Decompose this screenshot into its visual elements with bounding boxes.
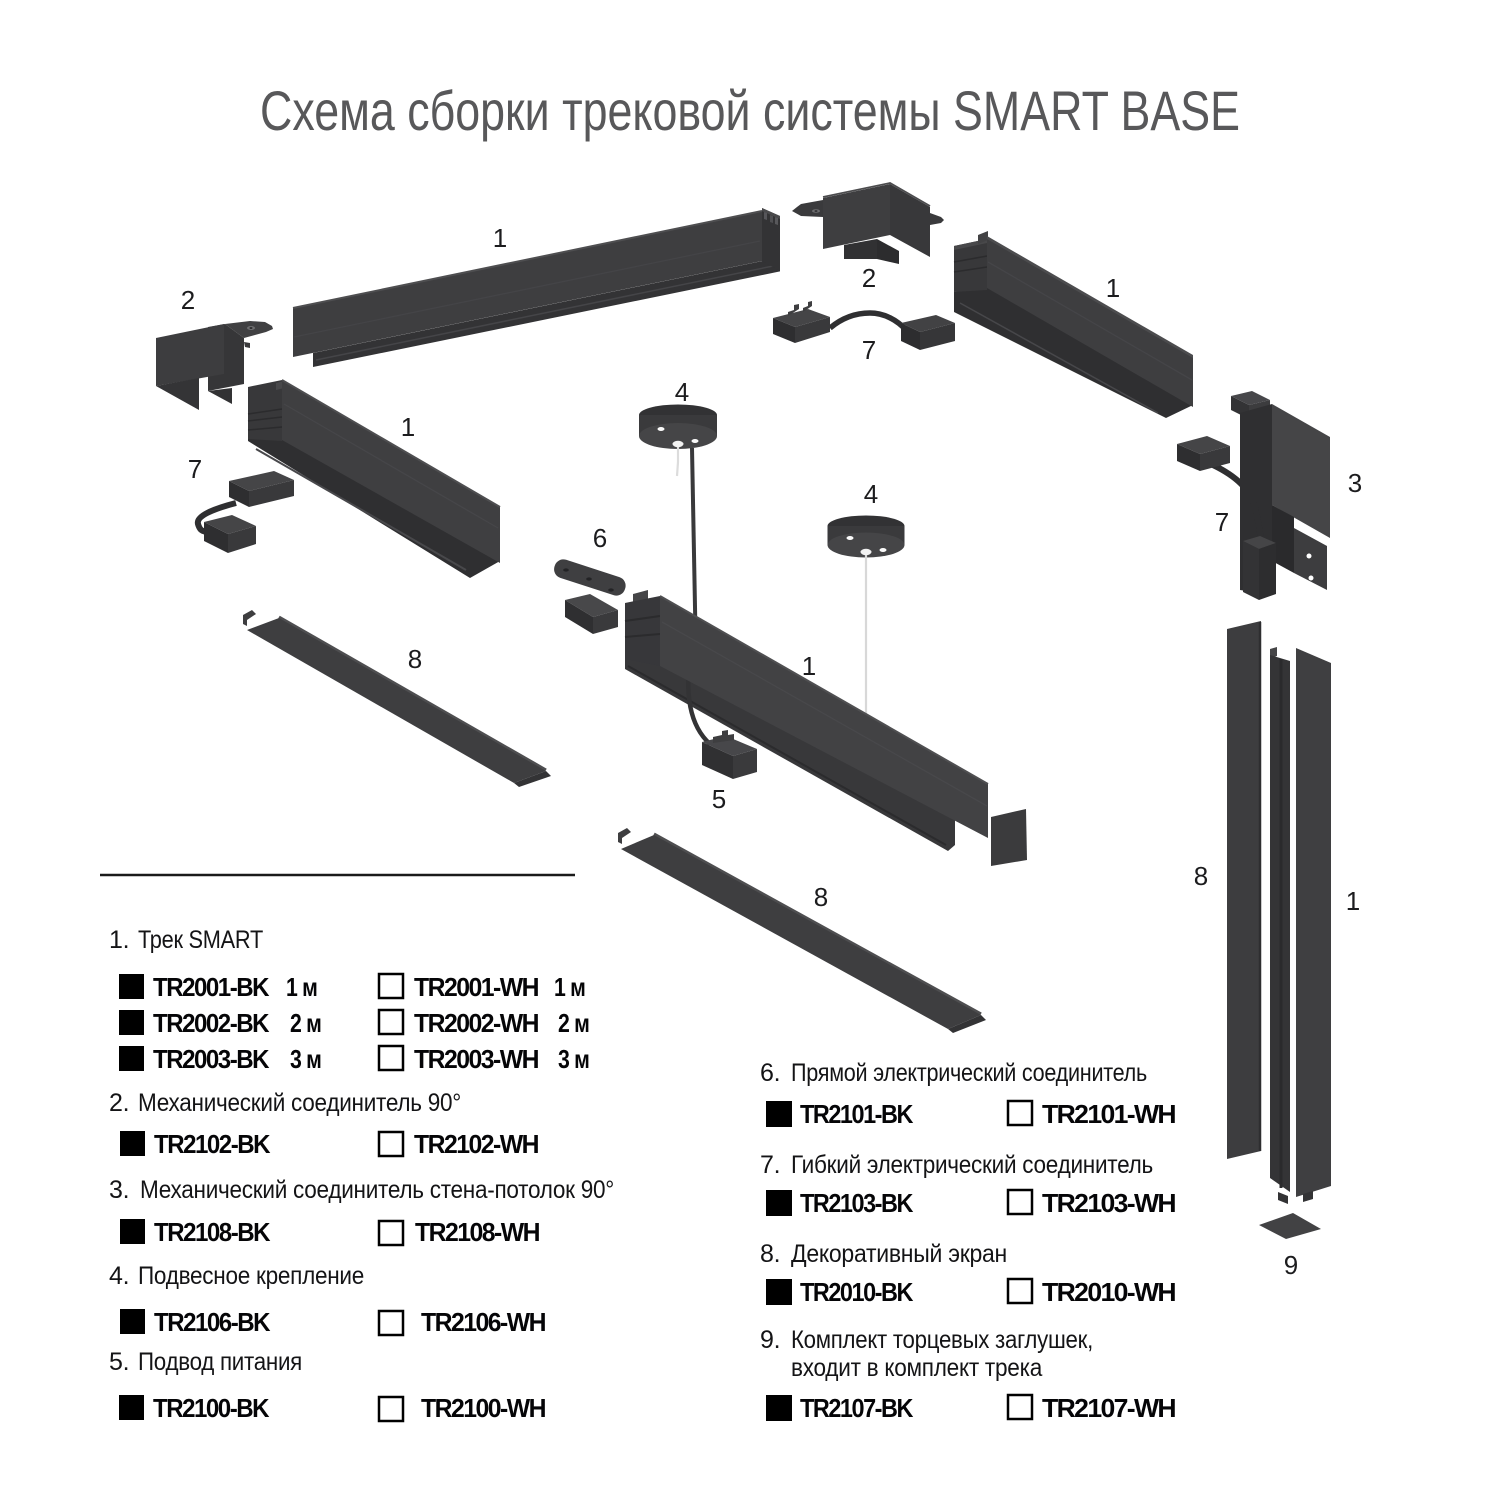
svg-text:4: 4 [675, 377, 689, 407]
svg-text:3: 3 [1348, 468, 1362, 498]
svg-text:1: 1 [1106, 273, 1120, 303]
svg-text:TR2002-WH: TR2002-WH [414, 1008, 539, 1038]
svg-text:TR2103-WH: TR2103-WH [1042, 1188, 1176, 1218]
svg-text:TR2106-WH: TR2106-WH [421, 1307, 546, 1337]
svg-text:TR2100-WH: TR2100-WH [421, 1393, 546, 1423]
svg-text:2: 2 [181, 285, 195, 315]
svg-text:TR2101-BK: TR2101-BK [800, 1099, 914, 1129]
svg-text:1: 1 [401, 412, 415, 442]
svg-text:4: 4 [864, 479, 878, 509]
svg-text:8: 8 [408, 644, 422, 674]
svg-text:5.: 5. [109, 1348, 129, 1376]
svg-text:2.: 2. [109, 1089, 129, 1117]
svg-text:1.: 1. [109, 926, 129, 954]
svg-text:TR2103-BK: TR2103-BK [800, 1188, 914, 1218]
svg-text:TR2010-BK: TR2010-BK [800, 1277, 914, 1307]
svg-text:TR2003-WH: TR2003-WH [414, 1044, 539, 1074]
svg-text:Декоративный экран: Декоративный экран [791, 1240, 1007, 1268]
svg-text:Трек SMART: Трек SMART [138, 926, 263, 954]
svg-text:TR2002-BK: TR2002-BK [153, 1008, 270, 1038]
svg-text:Механический соединитель 90°: Механический соединитель 90° [138, 1089, 461, 1117]
svg-text:TR2102-BK: TR2102-BK [154, 1129, 271, 1159]
svg-text:1 м: 1 м [286, 972, 317, 1002]
svg-text:1: 1 [493, 223, 507, 253]
svg-text:8: 8 [1194, 861, 1208, 891]
svg-text:3 м: 3 м [290, 1044, 321, 1074]
svg-text:6.: 6. [760, 1059, 780, 1087]
svg-text:9: 9 [1284, 1250, 1298, 1280]
svg-text:Прямой электрический соедините: Прямой электрический соединитель [791, 1059, 1147, 1087]
svg-text:1: 1 [802, 651, 816, 681]
svg-text:3 м: 3 м [558, 1044, 589, 1074]
svg-text:6: 6 [593, 523, 607, 553]
svg-text:TR2108-BK: TR2108-BK [154, 1217, 271, 1247]
svg-text:Гибкий электрический соедините: Гибкий электрический соединитель [791, 1151, 1153, 1179]
svg-text:7.: 7. [760, 1151, 780, 1179]
svg-text:2 м: 2 м [558, 1008, 589, 1038]
svg-text:входит в комплект трека: входит в комплект трека [791, 1354, 1042, 1382]
svg-text:7: 7 [862, 335, 876, 365]
svg-text:Схема сборки трековой системы: Схема сборки трековой системы SMART BASE [260, 79, 1240, 142]
svg-text:2 м: 2 м [290, 1008, 321, 1038]
svg-text:TR2102-WH: TR2102-WH [414, 1129, 539, 1159]
svg-text:5: 5 [712, 784, 726, 814]
svg-text:TR2010-WH: TR2010-WH [1042, 1277, 1176, 1307]
svg-text:TR2108-WH: TR2108-WH [415, 1217, 540, 1247]
svg-text:8: 8 [814, 882, 828, 912]
svg-text:TR2003-BK: TR2003-BK [153, 1044, 270, 1074]
svg-text:1: 1 [1346, 886, 1360, 916]
svg-text:Механический соединитель стена: Механический соединитель стена-потолок 9… [140, 1176, 614, 1204]
svg-text:Комплект торцевых заглушек,: Комплект торцевых заглушек, [791, 1326, 1093, 1354]
svg-text:3.: 3. [109, 1176, 129, 1204]
svg-text:TR2107-BK: TR2107-BK [800, 1393, 914, 1423]
svg-text:TR2001-WH: TR2001-WH [414, 972, 539, 1002]
svg-text:8.: 8. [760, 1240, 780, 1268]
svg-text:TR2101-WH: TR2101-WH [1042, 1099, 1176, 1129]
svg-text:7: 7 [188, 454, 202, 484]
svg-text:4.: 4. [109, 1262, 129, 1290]
svg-text:TR2106-BK: TR2106-BK [154, 1307, 271, 1337]
svg-text:TR2001-BK: TR2001-BK [153, 972, 270, 1002]
svg-text:Подвод питания: Подвод питания [138, 1348, 302, 1376]
svg-text:2: 2 [862, 263, 876, 293]
svg-text:TR2100-BK: TR2100-BK [153, 1393, 270, 1423]
svg-text:9.: 9. [760, 1326, 780, 1354]
svg-text:TR2107-WH: TR2107-WH [1042, 1393, 1176, 1423]
svg-text:7: 7 [1215, 507, 1229, 537]
svg-text:1 м: 1 м [554, 972, 585, 1002]
svg-text:Подвесное крепление: Подвесное крепление [138, 1262, 364, 1290]
